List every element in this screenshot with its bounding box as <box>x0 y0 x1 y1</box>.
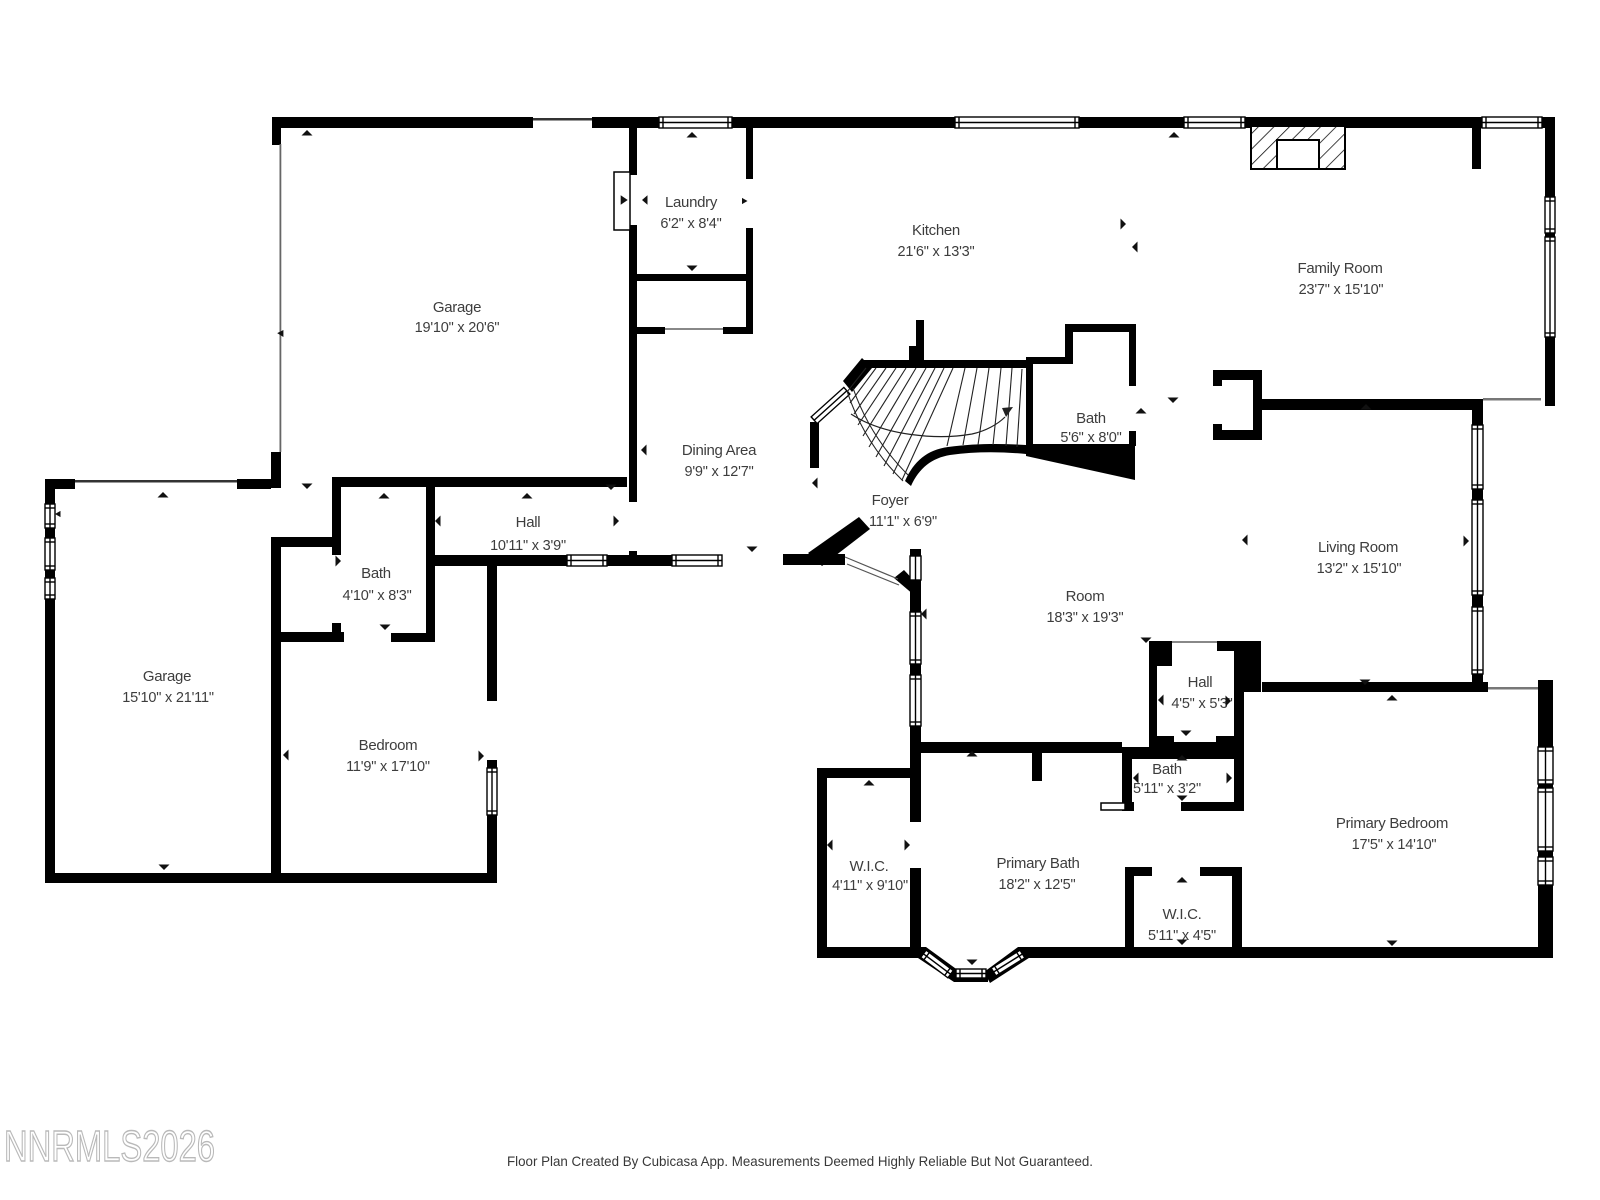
svg-text:Primary Bath: Primary Bath <box>996 855 1079 872</box>
svg-text:Living Room: Living Room <box>1318 539 1398 556</box>
svg-text:6'2" x 8'4": 6'2" x 8'4" <box>660 216 721 232</box>
svg-text:5'11" x 3'2": 5'11" x 3'2" <box>1133 781 1201 797</box>
svg-text:Bath: Bath <box>361 565 391 582</box>
svg-text:4'5" x 5'3": 4'5" x 5'3" <box>1171 696 1232 712</box>
svg-text:11'9" x 17'10": 11'9" x 17'10" <box>346 759 430 775</box>
svg-text:15'10" x 21'11": 15'10" x 21'11" <box>122 690 214 706</box>
svg-text:4'11" x 9'10": 4'11" x 9'10" <box>832 878 908 894</box>
svg-text:13'2" x 15'10": 13'2" x 15'10" <box>1317 561 1402 577</box>
svg-text:21'6" x 13'3": 21'6" x 13'3" <box>898 244 975 260</box>
svg-text:Dining Area: Dining Area <box>682 442 757 459</box>
svg-text:11'1" x 6'9": 11'1" x 6'9" <box>869 514 937 530</box>
svg-text:Hall: Hall <box>1188 674 1213 691</box>
svg-text:18'3" x 19'3": 18'3" x 19'3" <box>1047 610 1124 626</box>
svg-text:Bath: Bath <box>1076 410 1106 427</box>
svg-text:NNRMLS2026: NNRMLS2026 <box>4 1122 215 1171</box>
svg-text:17'5" x 14'10": 17'5" x 14'10" <box>1352 837 1437 853</box>
svg-text:Kitchen: Kitchen <box>912 222 960 239</box>
svg-text:Primary Bedroom: Primary Bedroom <box>1336 815 1448 832</box>
svg-text:19'10" x 20'6": 19'10" x 20'6" <box>415 320 500 336</box>
svg-text:Room: Room <box>1066 588 1105 605</box>
svg-text:23'7" x 15'10": 23'7" x 15'10" <box>1299 282 1384 298</box>
svg-text:Laundry: Laundry <box>665 194 718 211</box>
svg-text:W.I.C.: W.I.C. <box>849 858 888 875</box>
svg-text:9'9" x 12'7": 9'9" x 12'7" <box>684 464 753 480</box>
svg-text:Foyer: Foyer <box>872 492 909 509</box>
svg-text:W.I.C.: W.I.C. <box>1162 906 1201 923</box>
svg-text:Garage: Garage <box>433 299 481 316</box>
svg-text:Floor Plan Created By Cubicasa: Floor Plan Created By Cubicasa App. Meas… <box>507 1153 1093 1169</box>
svg-text:Family Room: Family Room <box>1297 260 1382 277</box>
svg-text:Garage: Garage <box>143 668 191 685</box>
svg-text:Bedroom: Bedroom <box>359 737 418 754</box>
svg-text:Bath: Bath <box>1152 761 1182 778</box>
svg-text:5'6" x 8'0": 5'6" x 8'0" <box>1060 430 1121 446</box>
svg-text:10'11" x 3'9": 10'11" x 3'9" <box>490 538 566 554</box>
svg-text:Hall: Hall <box>516 514 541 531</box>
svg-text:18'2" x 12'5": 18'2" x 12'5" <box>999 877 1076 893</box>
svg-text:4'10" x 8'3": 4'10" x 8'3" <box>342 588 411 604</box>
